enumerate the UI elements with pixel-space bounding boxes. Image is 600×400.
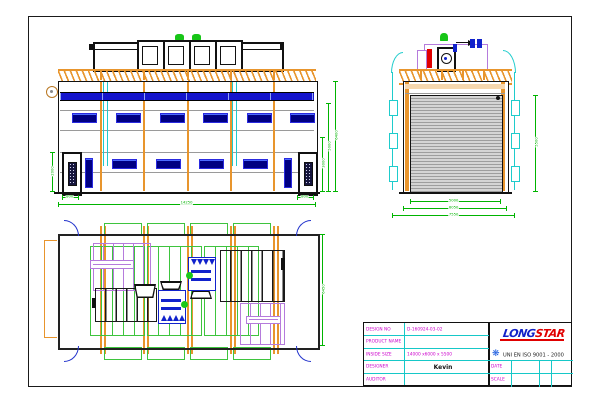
personnel-door-left <box>62 152 82 196</box>
side-col-left <box>405 82 409 191</box>
iso-text: UNI EN ISO 9001 - 2000 <box>503 353 564 358</box>
lintel-seam <box>405 93 505 94</box>
duct-flange <box>511 166 520 182</box>
duct-flange <box>389 166 398 182</box>
window <box>203 113 228 123</box>
roof-cap-icon <box>440 33 448 41</box>
lift-platform-br <box>240 303 285 345</box>
tb-value-designer: Kevin <box>434 365 453 371</box>
truss-post <box>441 70 443 80</box>
lintel-band <box>405 84 505 89</box>
personnel-door-right <box>298 152 318 196</box>
window <box>290 113 315 123</box>
plenum-above-fan-b-inner <box>162 283 181 289</box>
tb-label-design-no: DESIGN NO <box>366 327 391 331</box>
tb-label-scale: SCALE <box>491 377 505 381</box>
wall-motor-icon <box>46 86 58 98</box>
fan-unit-a <box>188 257 216 291</box>
window <box>116 113 141 123</box>
tb-label-designer: DESIGNER <box>366 365 388 369</box>
tb-label-date: DATE <box>491 365 502 369</box>
truss-post <box>187 70 189 80</box>
roof-tab-left <box>89 44 93 50</box>
truss-post <box>273 70 275 80</box>
dim-front-door-right: 800 <box>301 195 309 199</box>
truss-post <box>143 70 145 80</box>
lift-slat-tl <box>90 260 134 269</box>
tb-label-auditor: AUDITOR <box>366 377 386 381</box>
burner-bar <box>427 49 432 68</box>
airflow-triangle <box>179 315 185 321</box>
dim-side-total-width: 7550 <box>448 213 459 217</box>
window <box>160 113 185 123</box>
plenum-below-fan-a-inner <box>192 292 211 298</box>
truss-post <box>462 70 464 80</box>
window <box>112 159 137 169</box>
roof-cabinet-seam-right <box>239 49 280 50</box>
plenum-left-inner <box>136 286 155 297</box>
roof-tab-right <box>280 44 284 50</box>
damper-icon <box>453 44 457 52</box>
drawing-sheet: 14250 800 800 2000 3000 5000 6400 5500 5… <box>0 0 600 400</box>
dim-front-h-outer: 6400 <box>335 130 339 141</box>
roof-fan-box-inner <box>168 46 184 65</box>
tb-value-design-no: D-160924-03-02 <box>407 327 442 331</box>
truss-post <box>483 70 485 80</box>
roof-cabinet-seam-left <box>95 49 137 50</box>
dim-plan-depth: 6450 <box>322 284 326 295</box>
dim-side-door-width: 5000 <box>448 199 459 203</box>
bank-tab-left <box>92 298 96 308</box>
front-ground-line <box>54 192 320 194</box>
roof-cap-icon <box>175 34 184 40</box>
duct-flange <box>389 133 398 149</box>
window-narrow <box>85 158 93 188</box>
duct-flange <box>511 100 520 116</box>
iso-cert-icon: ❋ <box>492 350 500 359</box>
plan-duct-bracket <box>44 240 57 338</box>
duct-flange <box>511 133 520 149</box>
dim-front-width: 14250 <box>180 201 193 205</box>
truss-post <box>100 70 102 80</box>
title-block: DESIGN NO PRODUCT NAME INSIDE SIZE DESIG… <box>363 322 572 386</box>
truss-post <box>420 70 422 80</box>
tb-value-inside-size: 14000 x6000 x 5500 <box>407 352 452 356</box>
duct-flange <box>389 100 398 116</box>
door-louver-left <box>68 162 77 186</box>
roof-fan-box-inner <box>142 46 158 65</box>
window-narrow <box>284 158 292 188</box>
shutter-roller-dot <box>496 96 500 100</box>
window <box>199 159 224 169</box>
fan-a-motor-dot <box>186 272 193 279</box>
roof-cap-icon <box>192 34 201 40</box>
dim-side-outer-width: 6050 <box>448 206 459 210</box>
window <box>156 159 181 169</box>
fan-unit-b <box>158 290 186 324</box>
roof-fan-box-inner <box>194 46 210 65</box>
dim-front-door-left: 800 <box>66 195 74 199</box>
dim-front-h-mid: 5000 <box>328 141 332 152</box>
window <box>72 113 97 123</box>
filter-bank-right <box>220 250 285 302</box>
rolling-shutter-door <box>410 95 503 194</box>
tb-label-product-name: PRODUCT NAME <box>366 340 401 344</box>
flow-arrow <box>456 42 468 43</box>
fan-b-motor-dot <box>181 301 188 308</box>
tb-label-inside-size: INSIDE SIZE <box>366 352 392 356</box>
roof-fan-box-inner <box>220 46 236 65</box>
window <box>243 159 268 169</box>
dim-front-door-height: 2000 <box>51 166 55 177</box>
bank-tab-right <box>281 258 285 270</box>
intake-box-2 <box>477 39 482 48</box>
light-band <box>60 92 314 101</box>
truss-post <box>230 70 232 80</box>
ahu-step <box>417 50 427 71</box>
logo-underline <box>500 339 564 341</box>
intake-box <box>470 39 475 48</box>
lift-slat-br <box>246 316 281 324</box>
door-louver-right <box>304 162 313 186</box>
side-ground-line <box>399 192 512 194</box>
airflow-triangle <box>209 259 215 265</box>
window <box>247 113 272 123</box>
dim-front-h-inner: 3000 <box>322 158 326 169</box>
dim-side-door-height: 5500 <box>535 137 539 148</box>
